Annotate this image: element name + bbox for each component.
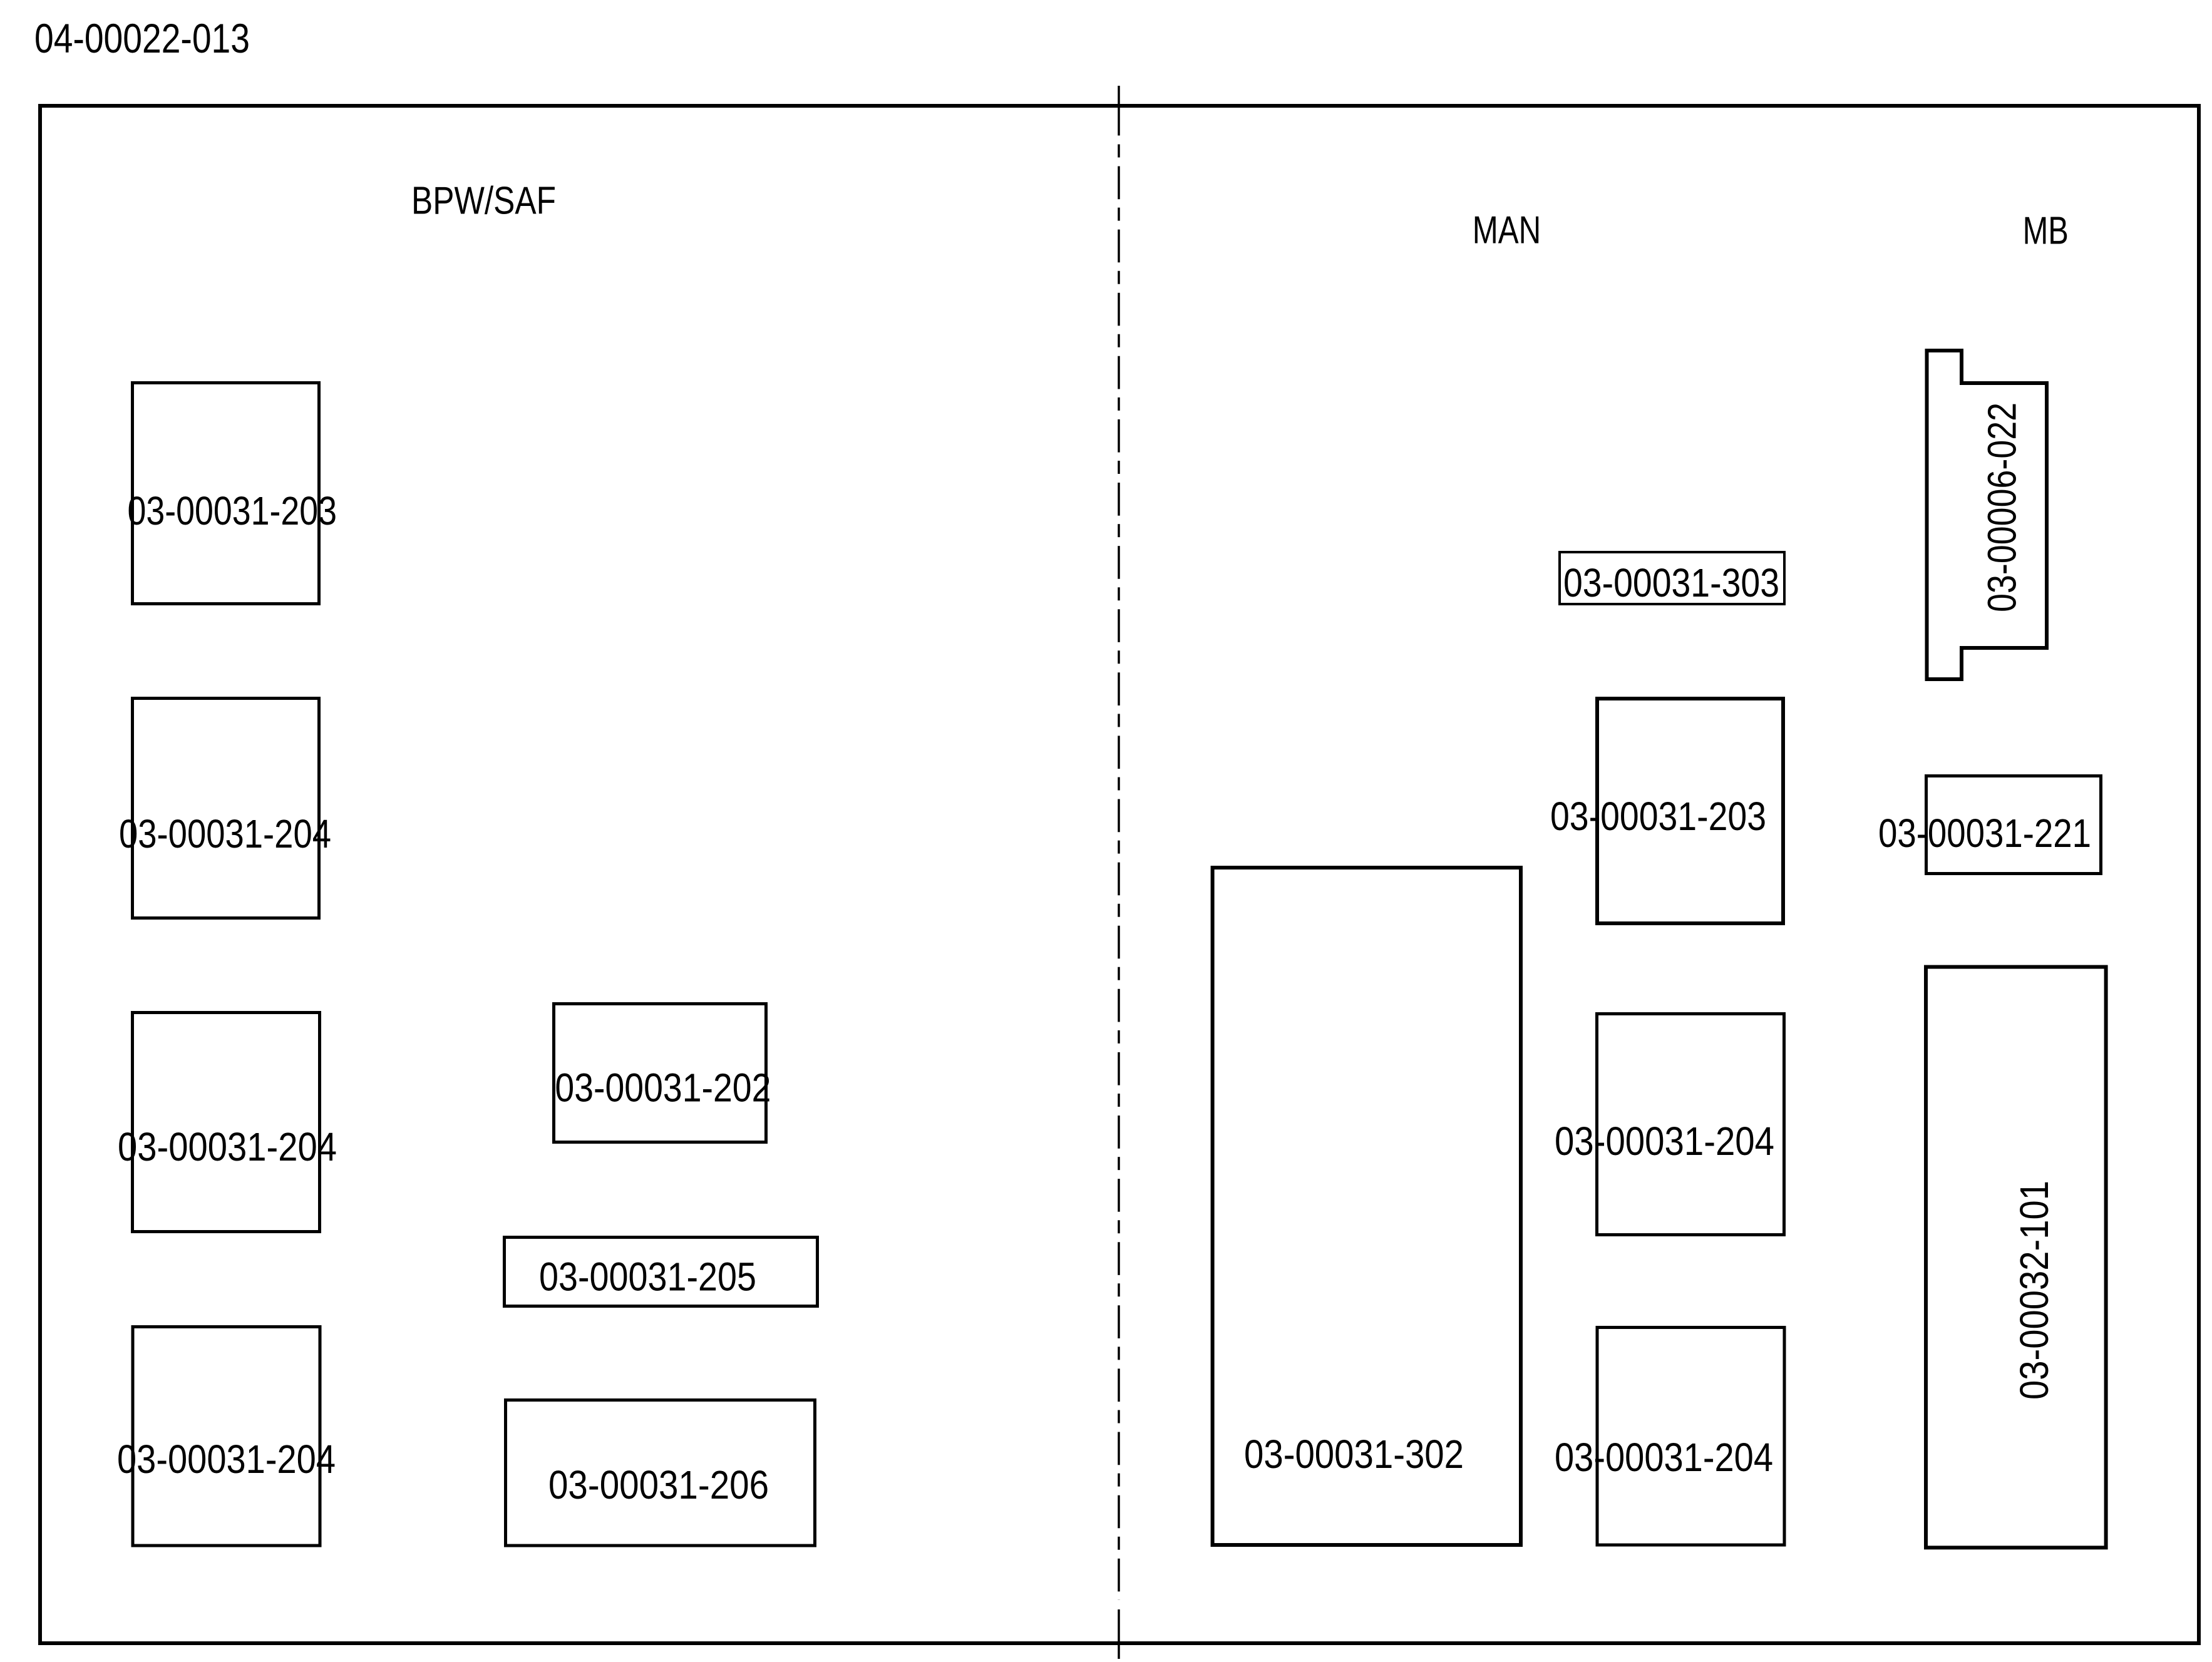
- svg-text:03-00031-205: 03-00031-205: [539, 1254, 756, 1300]
- svg-text:03-00006-022: 03-00006-022: [1980, 403, 2025, 612]
- svg-text:03-00031-203: 03-00031-203: [128, 488, 337, 533]
- svg-text:BPW/SAF: BPW/SAF: [411, 180, 556, 223]
- svg-text:03-00032-101: 03-00032-101: [2012, 1181, 2057, 1400]
- svg-text:03-00031-204: 03-00031-204: [117, 1437, 336, 1482]
- svg-text:03-00031-204: 03-00031-204: [1555, 1119, 1774, 1164]
- svg-text:MAN: MAN: [1473, 209, 1541, 252]
- svg-text:03-00031-302: 03-00031-302: [1244, 1432, 1464, 1477]
- svg-text:03-00031-204: 03-00031-204: [119, 811, 331, 856]
- svg-text:03-00031-204: 03-00031-204: [118, 1124, 337, 1169]
- svg-text:03-00031-206: 03-00031-206: [548, 1462, 769, 1507]
- svg-text:03-00031-203: 03-00031-203: [1550, 794, 1766, 839]
- svg-text:04-00022-013: 04-00022-013: [34, 15, 250, 61]
- svg-text:03-00031-221: 03-00031-221: [1878, 811, 2091, 856]
- svg-text:03-00031-202: 03-00031-202: [555, 1065, 771, 1110]
- svg-text:03-00031-303: 03-00031-303: [1563, 560, 1779, 605]
- svg-text:MB: MB: [2023, 210, 2069, 253]
- svg-text:03-00031-204: 03-00031-204: [1555, 1435, 1773, 1480]
